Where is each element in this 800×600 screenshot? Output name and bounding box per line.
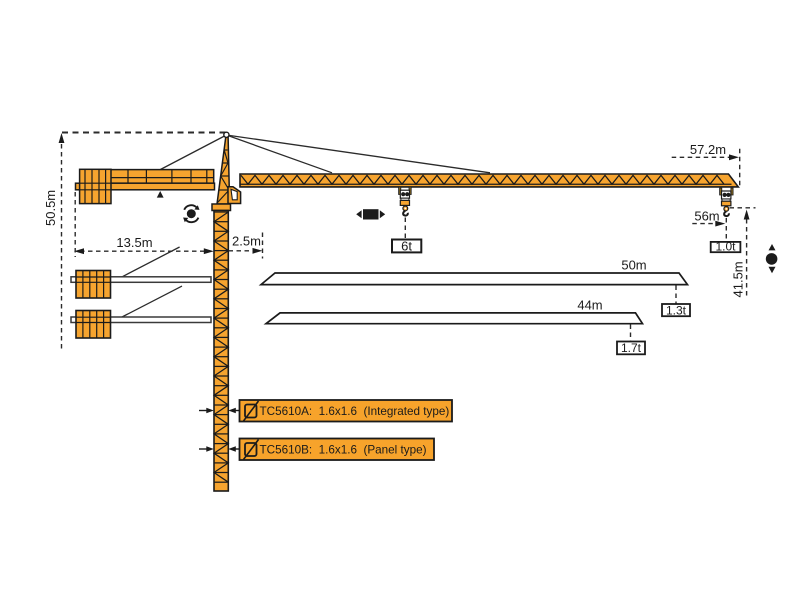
svg-text:1.3t: 1.3t: [666, 303, 687, 317]
svg-text:50.5m: 50.5m: [43, 190, 58, 226]
svg-text:1.0t: 1.0t: [715, 240, 736, 254]
svg-text:TC5610A: 1.6x1.6 (Integrated: TC5610A: 1.6x1.6 (Integrated type): [260, 405, 450, 418]
svg-text:50m: 50m: [621, 258, 646, 273]
svg-text:57.2m: 57.2m: [690, 142, 726, 157]
svg-text:1.7t: 1.7t: [621, 341, 642, 355]
svg-text:6t: 6t: [401, 238, 412, 253]
svg-text:2.5m: 2.5m: [232, 233, 261, 248]
svg-text:44m: 44m: [577, 297, 602, 312]
svg-text:56m: 56m: [694, 209, 719, 224]
svg-text:TC5610B: 1.6x1.6 (Panel type: TC5610B: 1.6x1.6 (Panel type): [260, 443, 427, 456]
svg-text:41.5m: 41.5m: [731, 261, 746, 297]
svg-text:13.5m: 13.5m: [116, 235, 152, 250]
